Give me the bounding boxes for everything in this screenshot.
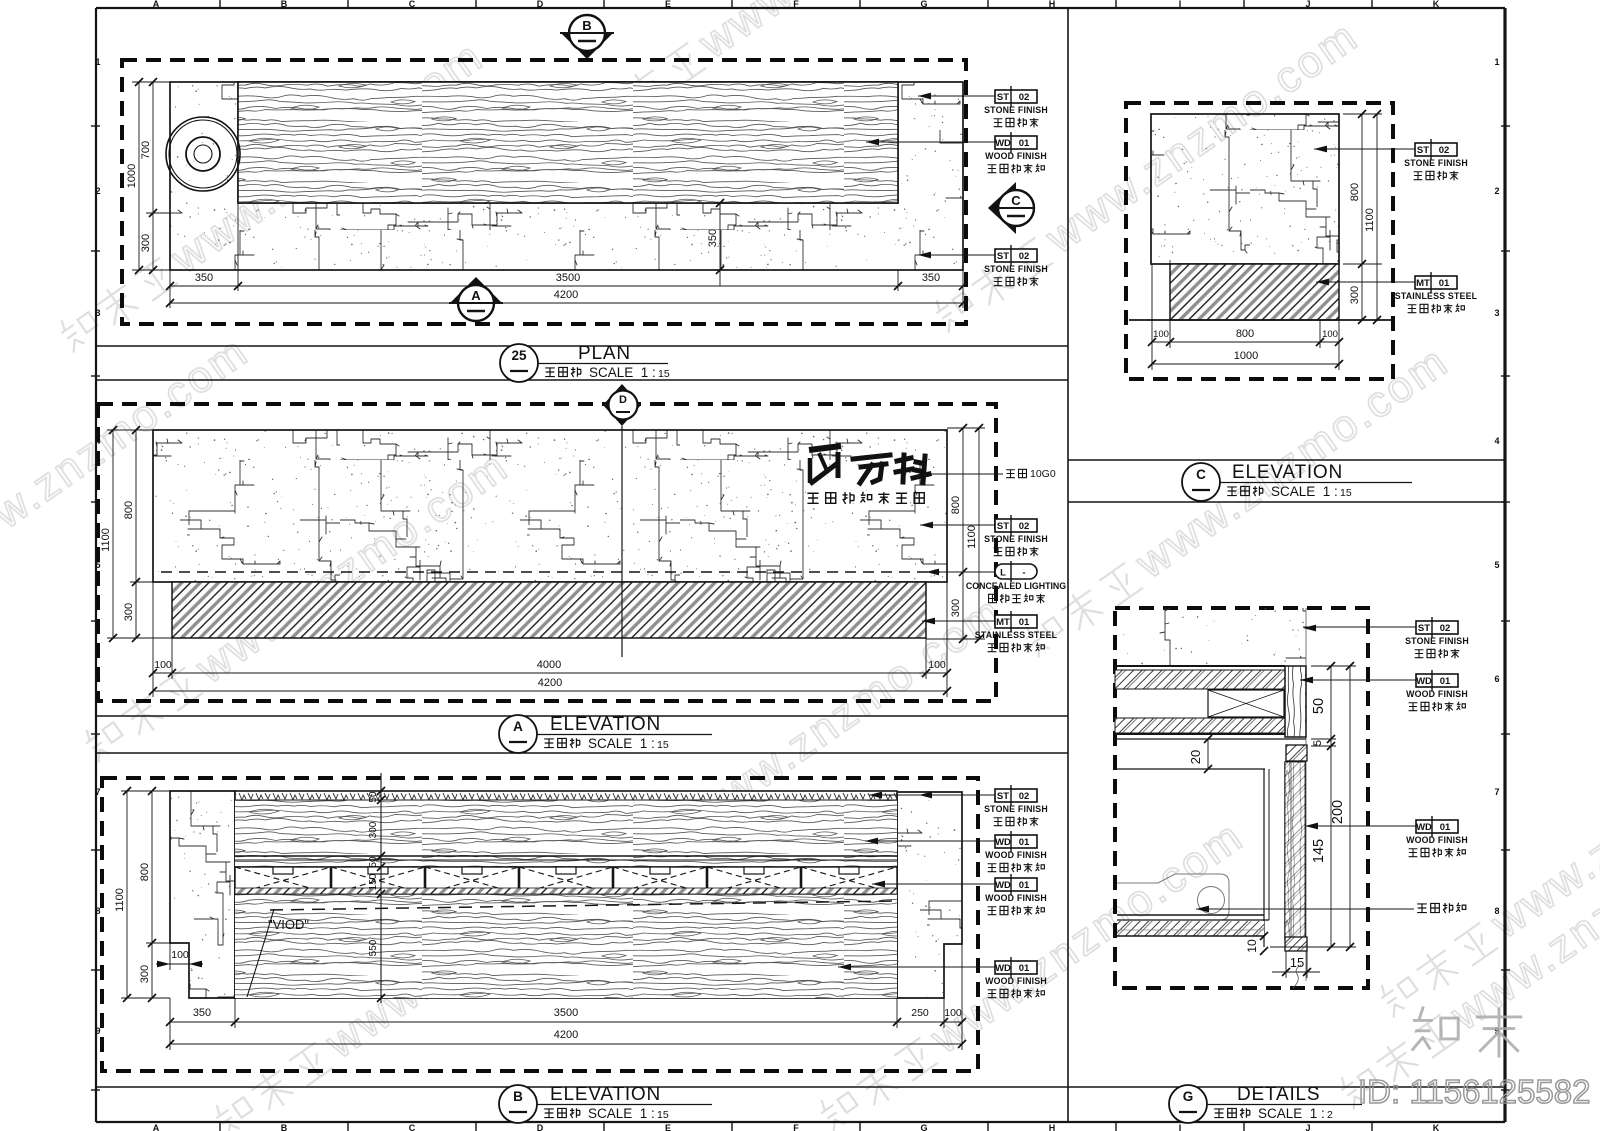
svg-text:50: 50 [1311, 698, 1327, 714]
svg-text:ELEVATION: ELEVATION [1232, 462, 1343, 483]
svg-text:1100: 1100 [100, 528, 112, 552]
svg-text:E: E [665, 0, 671, 9]
svg-text:20: 20 [1188, 750, 1203, 764]
svg-text:4200: 4200 [538, 677, 562, 689]
svg-text:50: 50 [368, 791, 379, 803]
svg-text:D: D [537, 0, 544, 9]
svg-text:5: 5 [1312, 740, 1324, 746]
svg-text:15: 15 [1340, 487, 1352, 499]
svg-text:H: H [1049, 0, 1056, 9]
svg-text:100: 100 [171, 949, 189, 961]
svg-text:C: C [409, 1123, 416, 1131]
svg-text:G: G [920, 1123, 927, 1131]
svg-text:800: 800 [1349, 183, 1361, 201]
svg-text:D: D [537, 1123, 544, 1131]
svg-text:G: G [920, 0, 927, 9]
svg-text:300: 300 [140, 234, 152, 252]
svg-text:SCALE 1 :: SCALE 1 : [1271, 484, 1338, 499]
svg-text:100: 100 [154, 659, 172, 671]
svg-text:4000: 4000 [537, 659, 561, 671]
svg-text:800: 800 [139, 863, 151, 881]
svg-text:K: K [1433, 1123, 1440, 1131]
svg-text:SCALE 1 :: SCALE 1 : [588, 1106, 655, 1121]
svg-text:C: C [1011, 193, 1021, 208]
svg-text:50: 50 [368, 856, 379, 868]
svg-text:150: 150 [368, 873, 379, 890]
svg-text:DETAILS: DETAILS [1237, 1084, 1320, 1105]
svg-text:H: H [1049, 1123, 1056, 1131]
svg-text:4200: 4200 [554, 289, 578, 301]
svg-text:5: 5 [1494, 560, 1499, 570]
svg-text:A: A [153, 0, 160, 9]
svg-text:3: 3 [1494, 308, 1499, 318]
svg-text:SCALE 1 :: SCALE 1 : [589, 365, 656, 380]
svg-text:250: 250 [911, 1007, 929, 1019]
svg-text:B: B [281, 0, 288, 9]
svg-text:I: I [1179, 0, 1182, 9]
svg-text:700: 700 [140, 141, 152, 159]
svg-text:ELEVATION: ELEVATION [550, 714, 661, 735]
svg-text:200: 200 [1330, 800, 1346, 824]
svg-text:A: A [153, 1123, 160, 1131]
svg-text:2: 2 [1327, 1109, 1333, 1121]
svg-text:300: 300 [1349, 286, 1361, 304]
svg-text:6: 6 [1494, 674, 1499, 684]
svg-text:B: B [582, 18, 591, 33]
svg-text:C: C [1196, 467, 1206, 482]
svg-text:SCALE 1 :: SCALE 1 : [588, 736, 655, 751]
svg-text:2: 2 [95, 186, 100, 196]
svg-text:300: 300 [139, 965, 151, 983]
svg-text:B: B [513, 1089, 523, 1104]
svg-text:B: B [281, 1123, 288, 1131]
svg-text:K: K [1433, 0, 1440, 9]
svg-text:1000: 1000 [1234, 350, 1258, 362]
svg-text:7: 7 [1494, 787, 1499, 797]
svg-text:G: G [1183, 1089, 1194, 1104]
svg-text:10: 10 [1245, 939, 1259, 953]
svg-text:100: 100 [1153, 329, 1169, 340]
svg-text:300: 300 [950, 599, 962, 617]
svg-text:ELEVATION: ELEVATION [550, 1084, 661, 1105]
svg-text:300: 300 [123, 603, 135, 621]
svg-text:100: 100 [928, 659, 946, 671]
svg-text:4200: 4200 [554, 1029, 578, 1041]
svg-text:4: 4 [1494, 436, 1499, 446]
svg-text:9: 9 [95, 1026, 100, 1036]
svg-text:ID: 1156125582: ID: 1156125582 [1358, 1073, 1590, 1110]
svg-text:PLAN: PLAN [578, 343, 631, 364]
svg-text:1000: 1000 [126, 164, 138, 188]
svg-text:A: A [471, 288, 481, 303]
svg-text:D: D [619, 394, 627, 406]
svg-text:800: 800 [950, 496, 962, 514]
svg-text:E: E [665, 1123, 671, 1131]
svg-text:A: A [513, 719, 523, 734]
svg-text:550: 550 [368, 939, 379, 956]
svg-text:1100: 1100 [966, 525, 978, 549]
svg-text:100: 100 [1322, 329, 1338, 340]
svg-text:350: 350 [193, 1007, 211, 1019]
svg-text:J: J [1305, 0, 1310, 9]
svg-text:145: 145 [1311, 839, 1327, 863]
svg-text:350: 350 [195, 272, 213, 284]
svg-text:2: 2 [1494, 186, 1499, 196]
svg-text:15: 15 [657, 1109, 669, 1121]
svg-text:350: 350 [707, 229, 719, 247]
svg-text:3500: 3500 [556, 272, 580, 284]
svg-text:SCALE 1 :: SCALE 1 : [1258, 1106, 1325, 1121]
svg-text:800: 800 [1236, 328, 1254, 340]
svg-text:300: 300 [368, 821, 379, 838]
svg-text:F: F [793, 1123, 799, 1131]
svg-text:1: 1 [1494, 57, 1499, 67]
svg-text:15: 15 [657, 739, 669, 751]
svg-text:"VIOD": "VIOD" [268, 917, 309, 932]
svg-text:3500: 3500 [554, 1007, 578, 1019]
svg-text:350: 350 [922, 272, 940, 284]
svg-text:C: C [409, 0, 416, 9]
svg-text:1100: 1100 [114, 888, 126, 912]
svg-text:8: 8 [95, 906, 100, 916]
svg-text:1: 1 [95, 57, 100, 67]
svg-text:F: F [793, 0, 799, 9]
svg-text:I: I [1179, 1123, 1182, 1131]
svg-text:1100: 1100 [1364, 208, 1376, 232]
svg-text:8: 8 [1494, 906, 1499, 916]
svg-text:25: 25 [511, 348, 527, 363]
svg-text:3: 3 [95, 308, 100, 318]
svg-text:800: 800 [123, 501, 135, 519]
svg-text:100: 100 [944, 1007, 962, 1019]
svg-text:15: 15 [658, 368, 670, 380]
svg-text:10G0: 10G0 [1030, 468, 1056, 480]
svg-text:7: 7 [95, 787, 100, 797]
svg-text:J: J [1305, 1123, 1310, 1131]
